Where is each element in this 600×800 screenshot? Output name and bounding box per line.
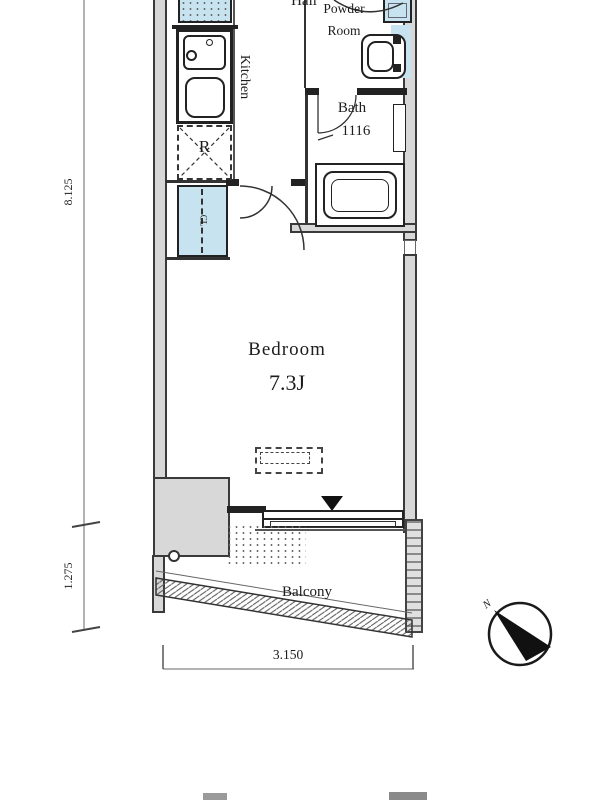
balcony-label: Balcony: [247, 585, 367, 600]
powder-room-label-line2: Room: [310, 24, 378, 38]
floor-plan: N Hall Kitchen Powder Room Bath 1116 R C…: [0, 0, 600, 800]
bedroom-size-label: 7.3J: [212, 372, 362, 394]
dimension-tick: [72, 522, 100, 527]
closet-label: CL: [199, 201, 208, 241]
bedroom-door-swing-arc-large: [240, 186, 304, 250]
bedroom-label: Bedroom: [212, 340, 362, 359]
bottom-edge-artifact: [389, 792, 427, 800]
dimension-width-label: 3.150: [248, 648, 328, 662]
refrigerator-label: R: [177, 138, 232, 155]
linework-layer: N: [0, 0, 600, 800]
dimension-main-height-label: 8.125: [62, 162, 74, 222]
bath-label: Bath: [318, 101, 386, 116]
kitchen-label: Kitchen: [237, 27, 251, 127]
bottom-edge-artifact: [203, 793, 227, 800]
compass-north-label: N: [480, 597, 494, 612]
bath-size-label: 1116: [322, 124, 390, 139]
powder-room-label-line1: Powder: [310, 2, 378, 16]
bedroom-door-swing-arc-small: [240, 186, 272, 218]
dimension-tick: [72, 627, 100, 632]
compass-icon: N: [480, 597, 551, 665]
dimension-balcony-height-label: 1.275: [62, 546, 74, 606]
